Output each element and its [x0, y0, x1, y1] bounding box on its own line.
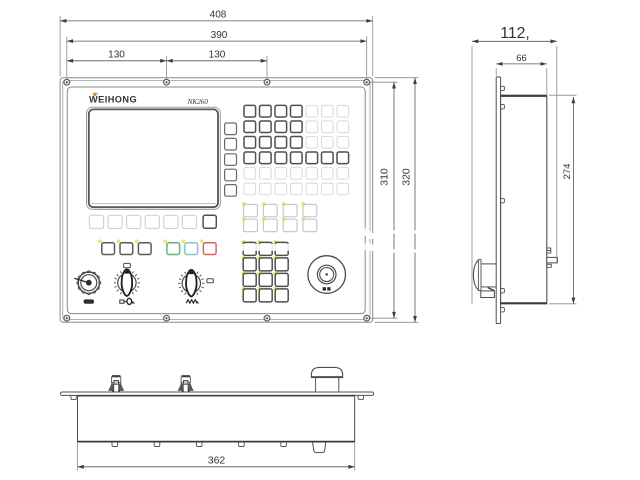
- svg-text:274: 274: [562, 164, 573, 180]
- svg-text:362: 362: [208, 455, 226, 467]
- svg-text:130: 130: [108, 50, 125, 61]
- svg-text:112,: 112,: [500, 25, 530, 42]
- svg-text:310: 310: [379, 168, 391, 186]
- svg-text:408: 408: [210, 10, 227, 21]
- svg-text:390: 390: [211, 30, 228, 41]
- svg-text:66: 66: [516, 52, 526, 63]
- svg-text:NK260: NK260: [187, 98, 209, 106]
- svg-text:320: 320: [401, 168, 413, 186]
- svg-text:130: 130: [209, 50, 226, 61]
